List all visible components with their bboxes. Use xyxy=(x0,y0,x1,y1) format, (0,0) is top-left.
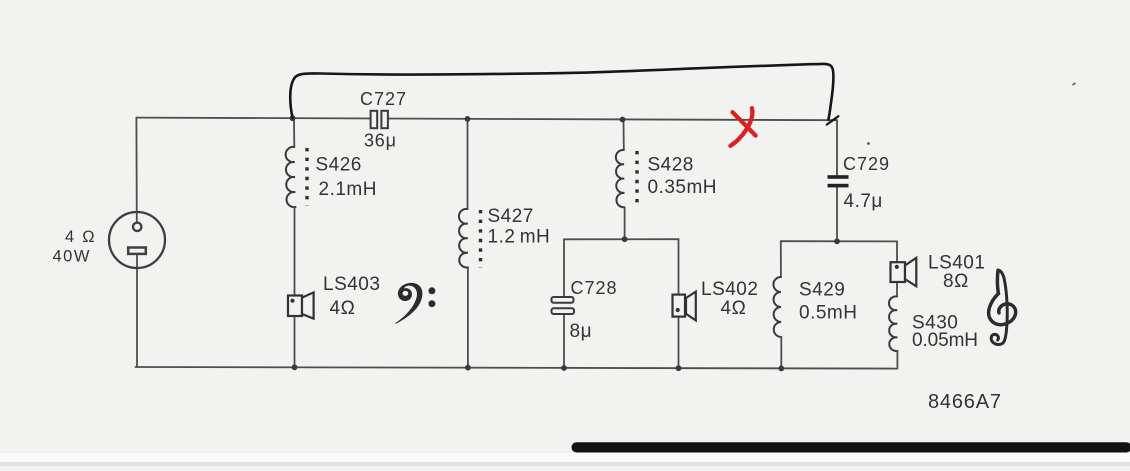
svg-text:4Ω: 4Ω xyxy=(721,298,747,319)
svg-text:S428: S428 xyxy=(648,154,694,175)
svg-text:4 Ω: 4 Ω xyxy=(65,228,95,246)
svg-text:0.05mH: 0.05mH xyxy=(912,330,978,351)
svg-text:1.2 mH: 1.2 mH xyxy=(488,226,551,247)
svg-text:LS402: LS402 xyxy=(701,279,758,300)
svg-text:C727: C727 xyxy=(360,89,407,109)
svg-text:LS403: LS403 xyxy=(323,274,380,295)
svg-text:S427: S427 xyxy=(488,206,534,227)
svg-text:2.1mH: 2.1mH xyxy=(319,179,377,200)
svg-text:36μ: 36μ xyxy=(364,130,397,150)
svg-text:S426: S426 xyxy=(316,154,362,175)
svg-text:0.35mH: 0.35mH xyxy=(648,177,718,198)
svg-text:8Ω: 8Ω xyxy=(943,271,969,292)
svg-text:8466A7: 8466A7 xyxy=(928,391,1002,413)
svg-text:4Ω: 4Ω xyxy=(330,298,356,319)
svg-text:C728: C728 xyxy=(571,278,618,298)
svg-text:0.5mH: 0.5mH xyxy=(799,302,857,323)
svg-text:4.7μ: 4.7μ xyxy=(844,191,883,212)
svg-text:C729: C729 xyxy=(843,154,890,174)
svg-text:8μ: 8μ xyxy=(570,321,593,342)
svg-text:S429: S429 xyxy=(799,279,845,300)
svg-text:40W: 40W xyxy=(53,248,91,266)
